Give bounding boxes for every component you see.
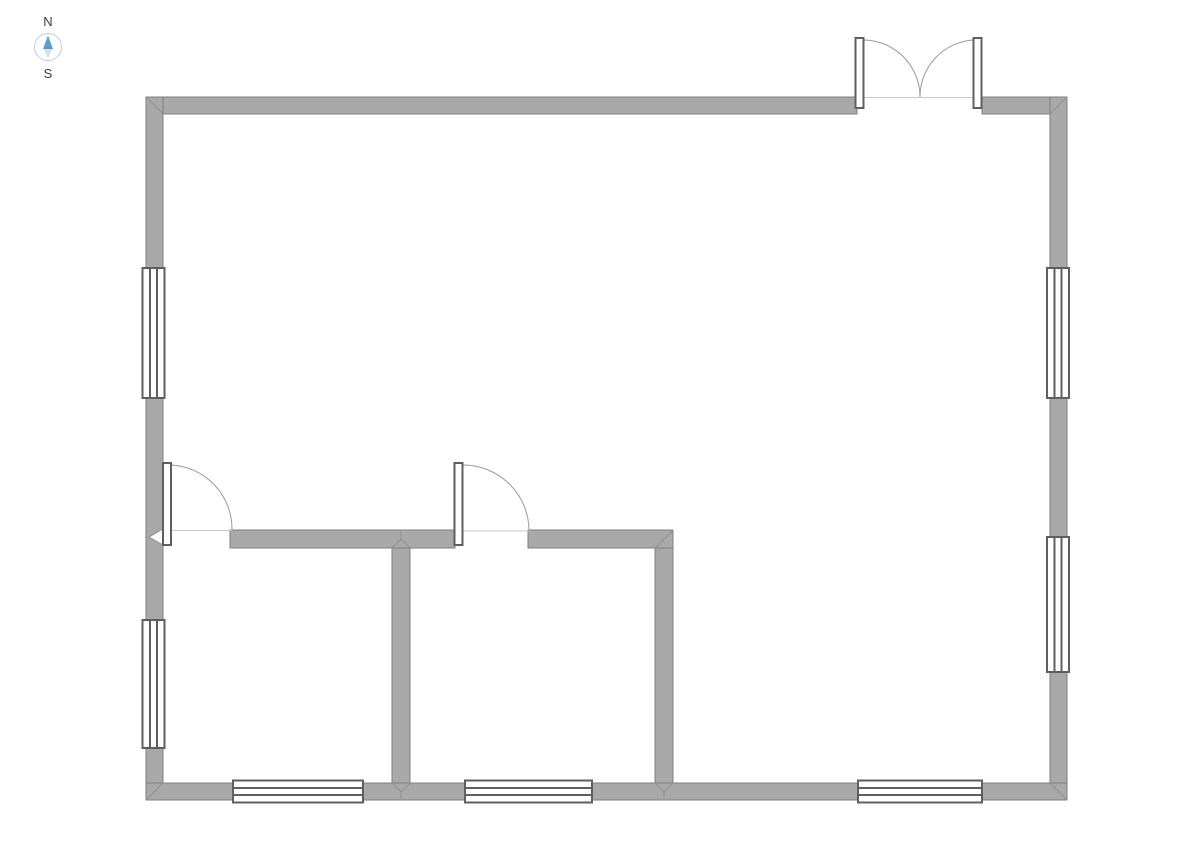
wall-interior-wall-vertical-right[interactable] <box>655 548 673 783</box>
walls-layer <box>146 97 1067 800</box>
door-swing-arc <box>463 465 530 531</box>
wall-interior-wall-vertical-left[interactable] <box>392 548 410 783</box>
window-bottom-left-room[interactable] <box>233 781 363 803</box>
window-frame <box>465 781 592 803</box>
door-swing-arc <box>920 40 974 97</box>
window-left-upper[interactable] <box>143 268 165 398</box>
entry-double-door[interactable] <box>856 38 983 108</box>
door-swing-arc <box>171 465 232 530</box>
wall-interior-wall-horizontal-right[interactable] <box>528 530 673 548</box>
window-bottom-middle-room[interactable] <box>465 781 592 803</box>
middle-room-door[interactable] <box>455 463 530 545</box>
left-room-door[interactable] <box>163 463 232 545</box>
door-leaf <box>455 463 463 545</box>
door-swing-arc <box>864 40 921 97</box>
compass-north-label: N <box>43 14 52 29</box>
seams-layer <box>146 97 1067 800</box>
wall-interior-wall-horizontal-left[interactable] <box>230 530 455 548</box>
wall-top-wall-left-of-entry[interactable] <box>146 97 857 114</box>
window-left-lower[interactable] <box>143 620 165 748</box>
window-right-lower[interactable] <box>1047 537 1069 672</box>
window-right-upper[interactable] <box>1047 268 1069 398</box>
window-bottom-right[interactable] <box>858 781 982 803</box>
door-leaf <box>163 463 171 545</box>
floorplan-canvas[interactable]: N S <box>0 0 1191 842</box>
window-frame <box>143 620 165 748</box>
compass-south-label: S <box>44 66 53 81</box>
window-frame <box>233 781 363 803</box>
door-leaf <box>856 38 864 108</box>
door-leaf <box>974 38 982 108</box>
wall-right-exterior-wall[interactable] <box>1050 97 1067 800</box>
window-frame <box>858 781 982 803</box>
floorplan-page: N S <box>0 0 1191 842</box>
window-frame <box>1047 537 1069 672</box>
window-frame <box>1047 268 1069 398</box>
compass[interactable]: N S <box>35 14 62 81</box>
window-frame <box>143 268 165 398</box>
